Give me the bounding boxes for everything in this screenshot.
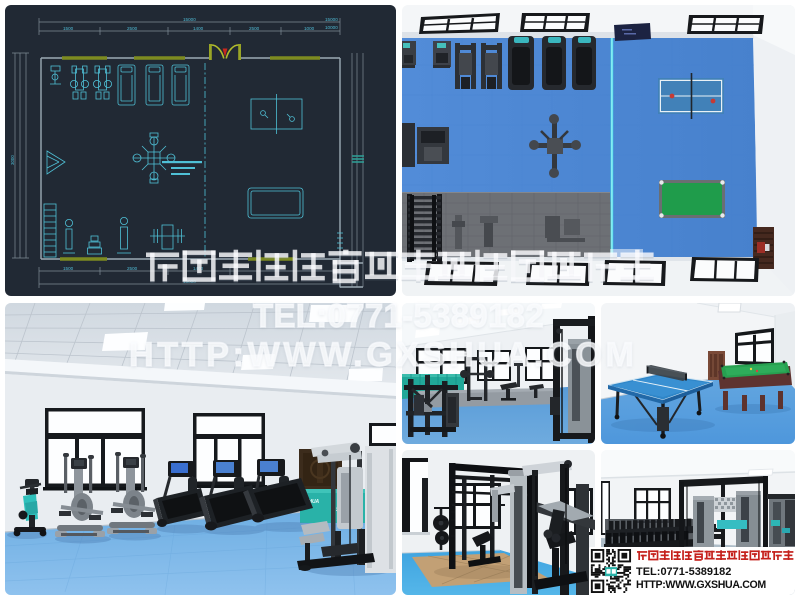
svg-text:1400: 1400 <box>193 26 204 31</box>
svg-text:15000: 15000 <box>325 17 338 22</box>
svg-text:1500: 1500 <box>63 26 74 31</box>
svg-text:2500: 2500 <box>249 26 260 31</box>
svg-text:1000: 1000 <box>304 26 315 31</box>
svg-text:2500: 2500 <box>127 266 138 271</box>
svg-text:3000: 3000 <box>10 155 15 165</box>
svg-text:15000: 15000 <box>183 17 196 22</box>
svg-text:2500: 2500 <box>127 26 138 31</box>
svg-text:1500: 1500 <box>63 266 74 271</box>
svg-text:10000: 10000 <box>325 25 338 30</box>
